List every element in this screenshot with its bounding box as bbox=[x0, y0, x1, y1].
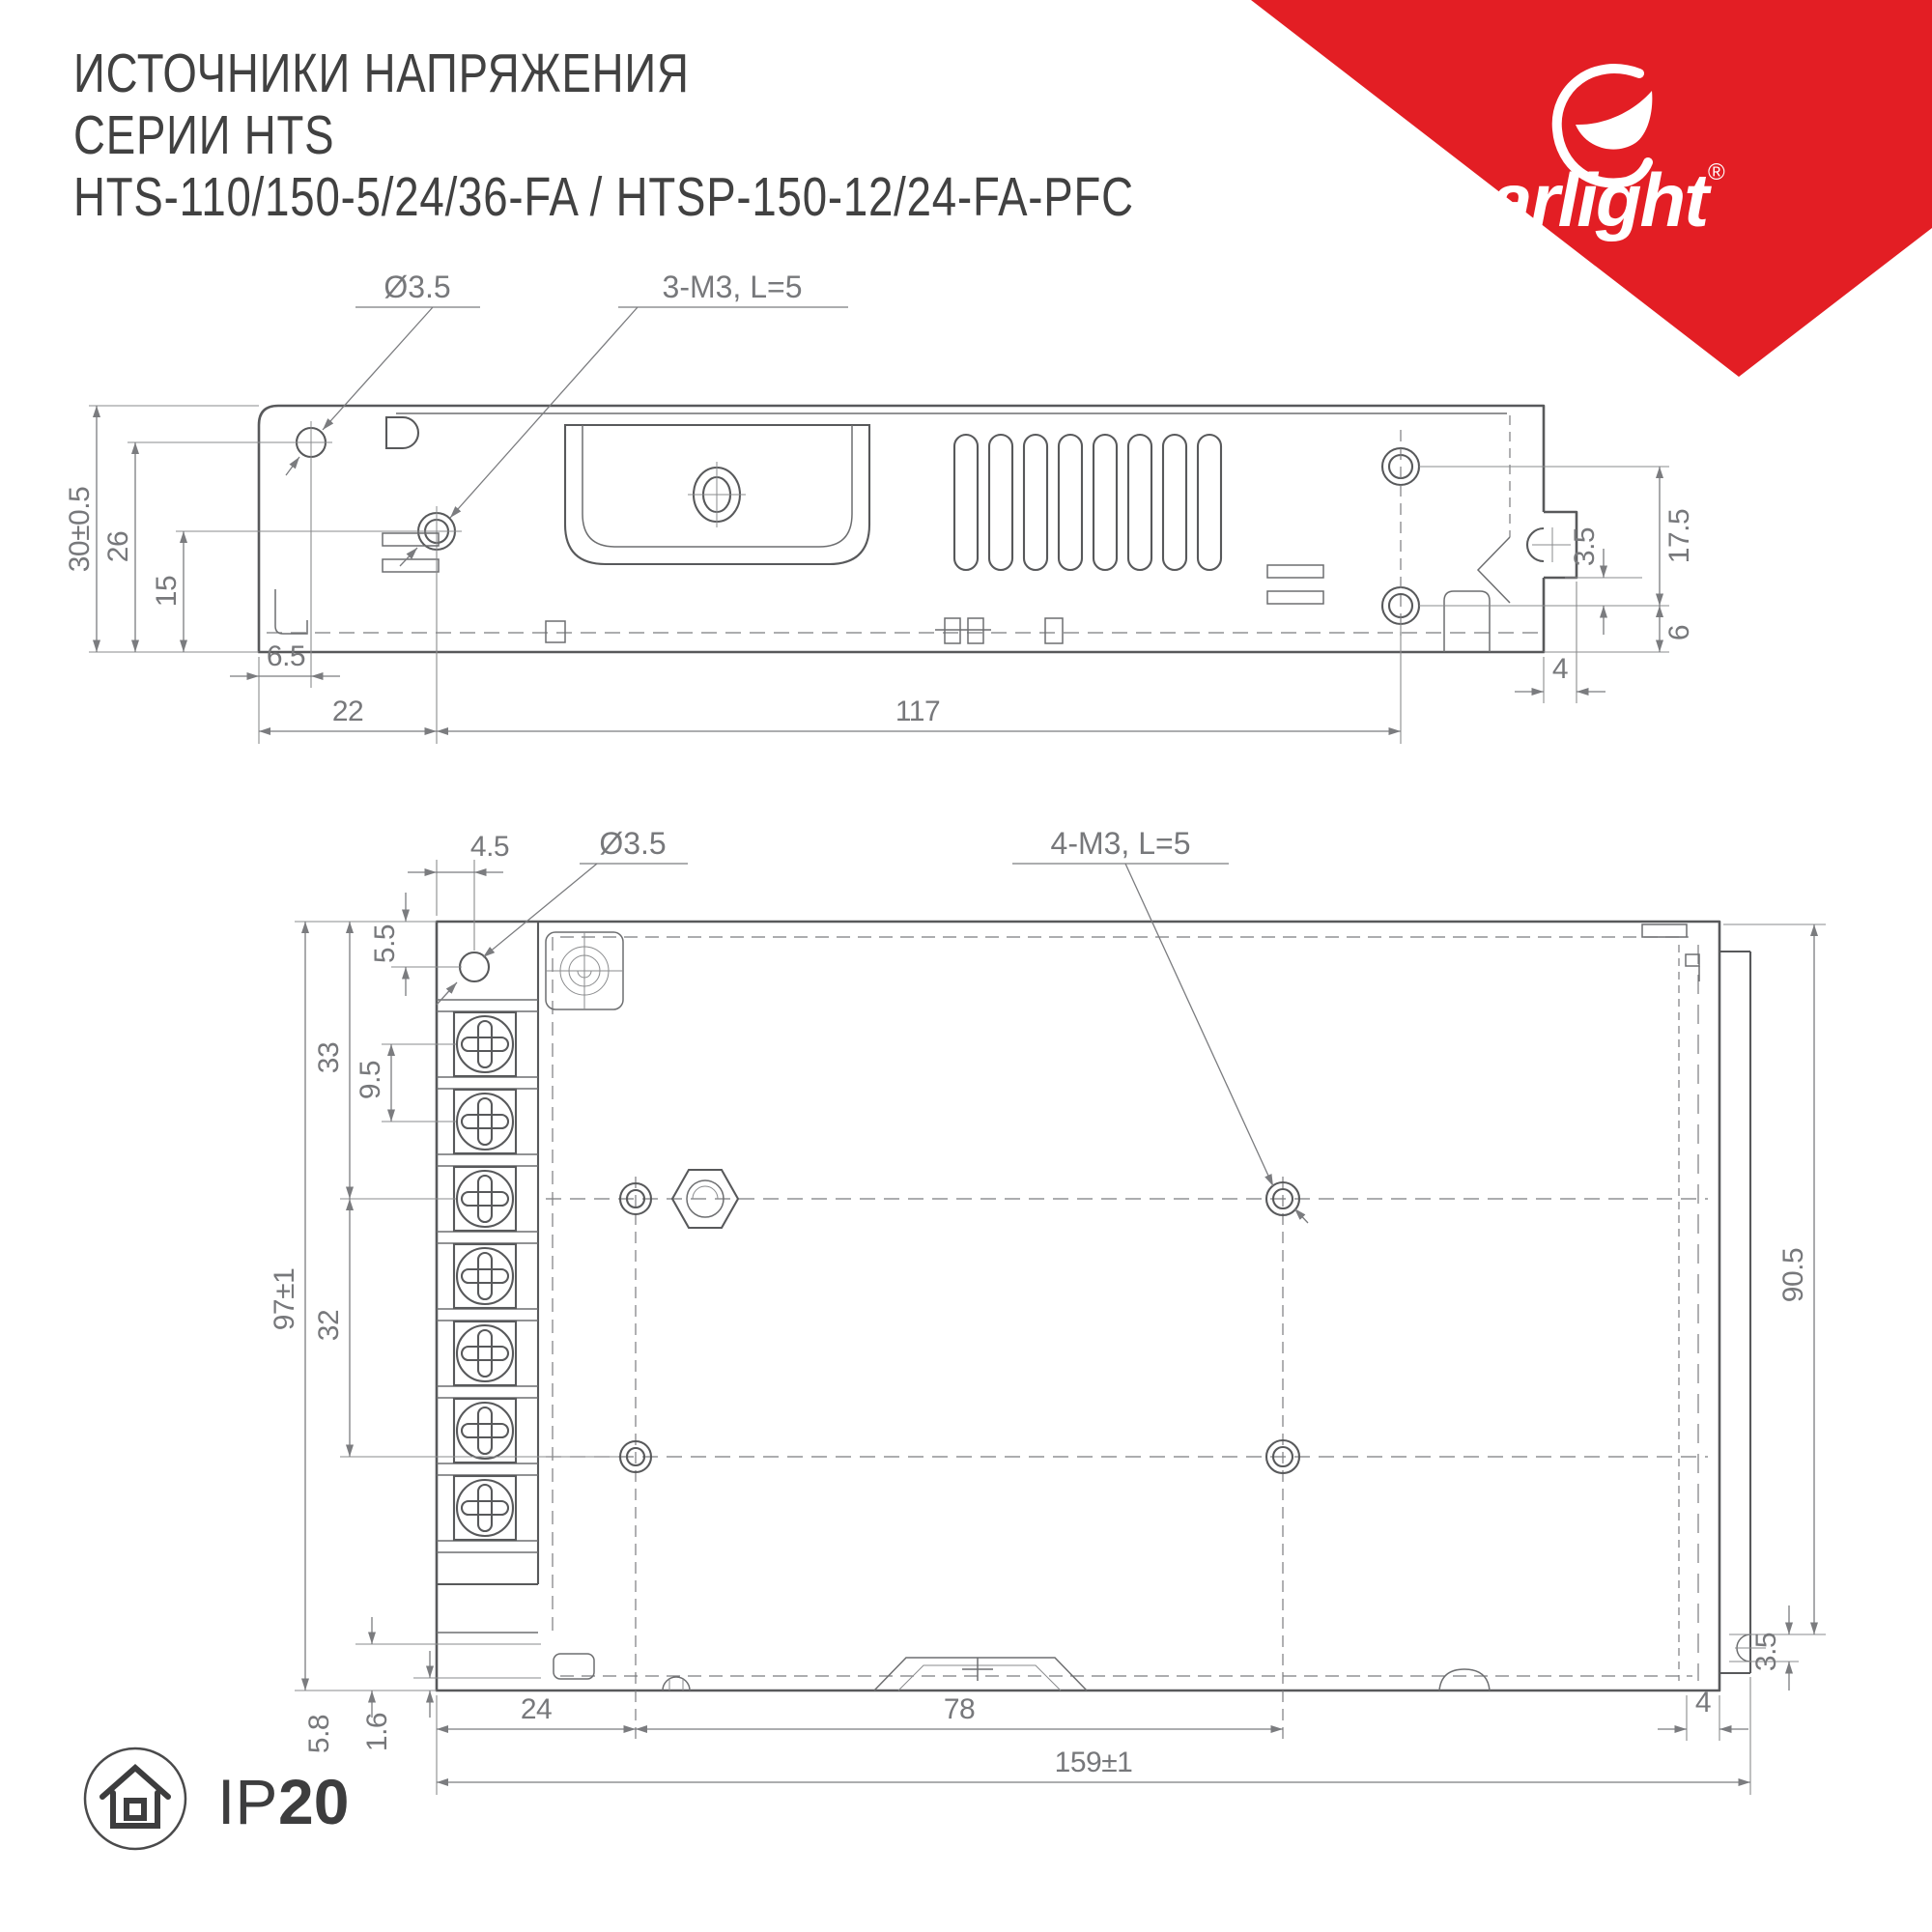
dim-6: 6 bbox=[1663, 625, 1695, 640]
arlight-wordmark: arlight bbox=[1491, 157, 1712, 242]
terminal-cover-cutout bbox=[565, 425, 869, 564]
dim-6-5: 6.5 bbox=[267, 640, 305, 672]
dim-22: 22 bbox=[332, 696, 363, 727]
dim-4-5: 4.5 bbox=[470, 831, 509, 863]
bottom-dimensions: 4.5 5.5 33 32 9.5 bbox=[269, 831, 1826, 1795]
dim-5-5: 5.5 bbox=[369, 924, 401, 963]
dim-15: 15 bbox=[151, 576, 183, 607]
cover-flange bbox=[1642, 924, 1766, 1673]
dim-30: 30±0.5 bbox=[64, 487, 96, 573]
bottom-edge-details bbox=[554, 1654, 1490, 1690]
mounting-pattern bbox=[546, 1170, 1708, 1739]
dim-33: 33 bbox=[313, 1042, 345, 1073]
brand-corner: arlight ® bbox=[1251, 0, 1932, 377]
inner-dashed-outline bbox=[553, 937, 1698, 1681]
side-screw-callout: 3-M3, L=5 bbox=[663, 270, 803, 304]
d-notch bbox=[386, 417, 418, 448]
dim-26: 26 bbox=[102, 531, 134, 562]
dim-17-5: 17.5 bbox=[1663, 509, 1695, 563]
bottom-view-outline bbox=[437, 922, 1719, 1690]
dim-3-5-bottom: 3.5 bbox=[1750, 1633, 1782, 1671]
dim-97: 97±1 bbox=[269, 1268, 300, 1331]
dim-9-5: 9.5 bbox=[355, 1061, 386, 1099]
bottom-view-drawing: Ø3.5 4-M3, L=5 4.5 bbox=[269, 826, 1826, 1795]
dim-90-5: 90.5 bbox=[1777, 1248, 1809, 1302]
side-hole-callout: Ø3.5 bbox=[384, 270, 450, 304]
arlight-registered-mark: ® bbox=[1708, 159, 1725, 185]
terminal-strip bbox=[437, 922, 538, 1633]
side-slot-pairs bbox=[383, 533, 1323, 604]
side-callouts: Ø3.5 3-M3, L=5 bbox=[286, 270, 848, 566]
base-plate-details bbox=[267, 415, 1540, 652]
dim-5-8: 5.8 bbox=[303, 1715, 335, 1753]
ip-value: 20 bbox=[278, 1766, 349, 1837]
dim-1-6: 1.6 bbox=[361, 1713, 393, 1751]
dim-32: 32 bbox=[313, 1310, 345, 1341]
side-view-drawing: Ø3.5 3-M3, L=5 30±0.5 26 15 bbox=[64, 270, 1695, 744]
ip-rating-badge: IP 20 bbox=[85, 1748, 349, 1849]
dim-4-bottom: 4 bbox=[1695, 1687, 1711, 1719]
vent-slots bbox=[954, 435, 1221, 570]
indoor-house-icon bbox=[102, 1768, 168, 1826]
bottom-callouts: Ø3.5 4-M3, L=5 bbox=[437, 826, 1308, 1223]
dim-117: 117 bbox=[895, 696, 940, 727]
dim-159: 159±1 bbox=[1055, 1747, 1133, 1778]
terminal-screws bbox=[454, 1012, 516, 1540]
dim-24: 24 bbox=[521, 1693, 552, 1725]
grommet bbox=[546, 932, 623, 1009]
bottom-screw-callout: 4-M3, L=5 bbox=[1051, 826, 1191, 861]
ip-label: IP bbox=[217, 1766, 277, 1837]
dim-4-side: 4 bbox=[1552, 653, 1568, 685]
dim-78: 78 bbox=[944, 1693, 975, 1725]
dim-3-5-side: 3.5 bbox=[1569, 527, 1601, 566]
side-view-outline bbox=[259, 406, 1544, 652]
bottom-hole-callout: Ø3.5 bbox=[599, 826, 666, 861]
side-right-holes bbox=[1382, 430, 1419, 636]
technical-drawing-canvas: arlight ® bbox=[0, 0, 1932, 1932]
datasheet-page: ИСТОЧНИКИ НАПРЯЖЕНИЯ СЕРИИ HTS HTS-110/1… bbox=[0, 0, 1932, 1932]
